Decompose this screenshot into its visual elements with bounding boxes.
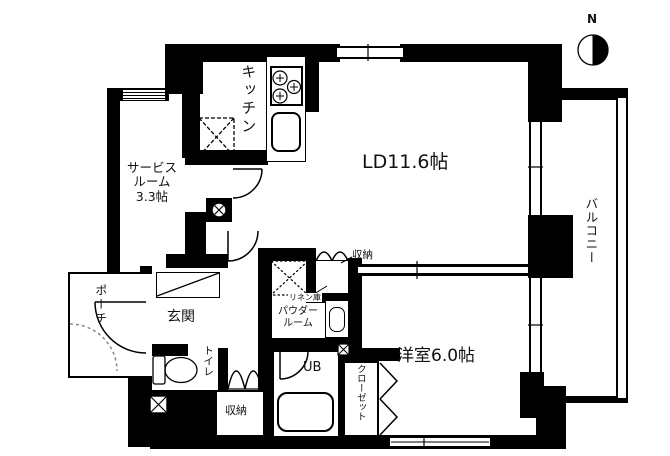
- service-room-line3: 3.3帖: [112, 190, 192, 204]
- hall-storage-label: 収納: [225, 405, 247, 418]
- pipe-space-box-icon: [150, 396, 167, 413]
- powder-room-label: パウダー ルーム: [268, 306, 328, 329]
- folding-door-icon: [228, 371, 262, 389]
- service-room-line2: ルーム: [112, 175, 192, 189]
- door-swing-icon: [228, 231, 258, 261]
- porch-label: ポーチ: [93, 284, 107, 326]
- plan-symbols: [0, 0, 670, 456]
- door-swing-icon: [233, 169, 262, 198]
- washing-machine-space-icon: [271, 261, 308, 295]
- shoe-cabinet-diagonal: [157, 273, 219, 296]
- balcony-label: バルコニー: [583, 197, 597, 265]
- toilet-icon: [153, 356, 197, 384]
- refrigerator-space-icon: [199, 118, 234, 156]
- closet-label: クローゼット: [354, 364, 365, 421]
- kitchen-label: キッチン: [239, 64, 256, 136]
- stove-burners-icon: [273, 71, 301, 103]
- powder-room-line2: ルーム: [268, 318, 328, 330]
- living-dining-label: LD11.6帖: [362, 152, 449, 174]
- linen-storage-label: リネン庫: [288, 293, 322, 302]
- service-room-line1: サービス: [112, 161, 192, 175]
- toilet-label: トイレ: [202, 345, 214, 377]
- pipe-space-icon: [212, 203, 226, 217]
- folding-door-icon: [316, 252, 348, 261]
- compass-rose-icon: [578, 35, 608, 65]
- porch-door-swing-dashed-icon: [70, 324, 117, 371]
- powder-room-line1: パウダー: [268, 306, 328, 318]
- pipe-space-box-icon: [338, 344, 349, 355]
- compass-north-label: N: [587, 13, 597, 27]
- ld-storage-label: 収納: [352, 249, 373, 261]
- closet-folding-door-icon: [380, 363, 397, 435]
- unit-bath-label: UB: [303, 361, 321, 376]
- western-room-label: 洋室6.0帖: [397, 347, 475, 367]
- service-room-label: サービス ルーム 3.3帖: [112, 161, 192, 204]
- floor-plan: キッチン LD11.6帖 サービス ルーム 3.3帖 バルコニー 玄関 ポーチ …: [0, 0, 670, 456]
- entrance-label: 玄関: [167, 309, 195, 325]
